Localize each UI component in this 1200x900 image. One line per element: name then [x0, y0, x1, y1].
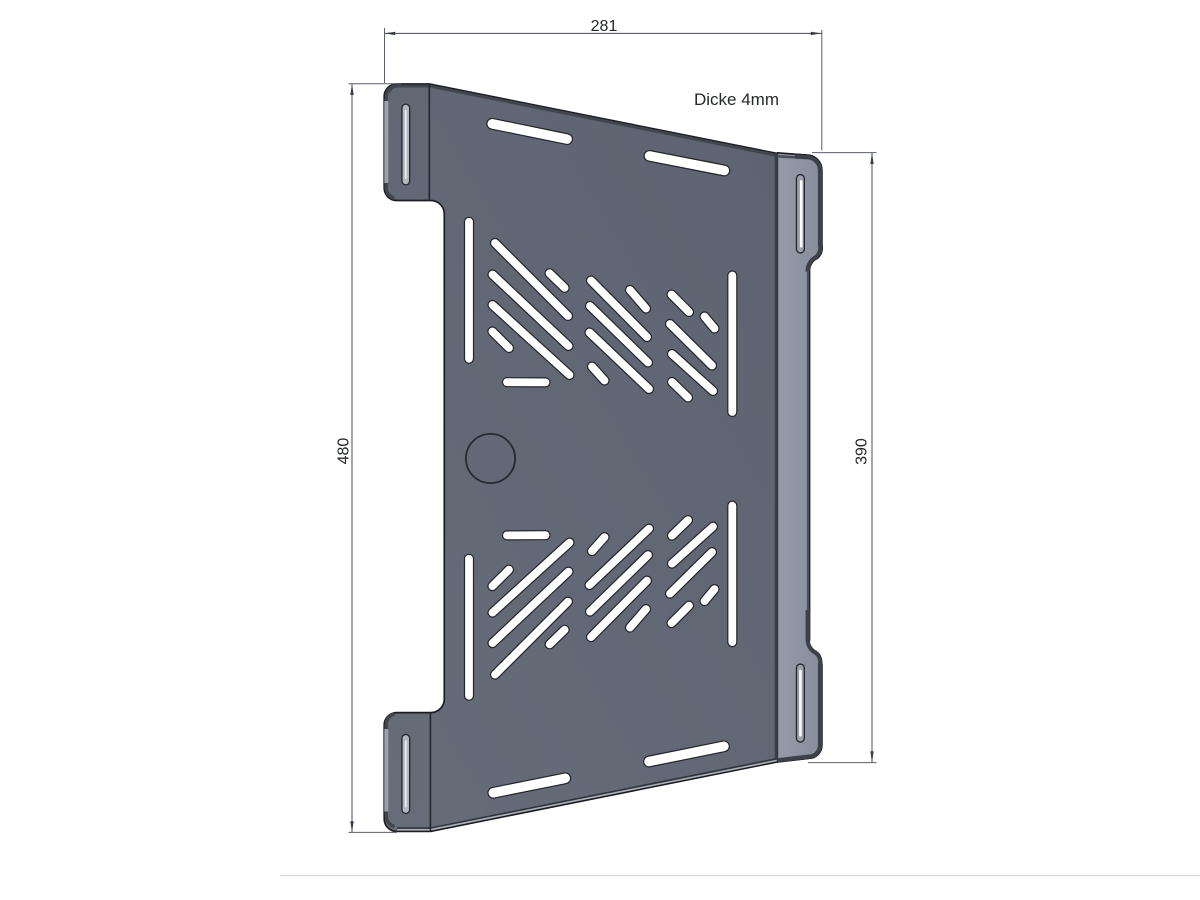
svg-text:281: 281 [591, 18, 618, 35]
svg-text:390: 390 [854, 438, 871, 465]
svg-text:480: 480 [336, 438, 353, 465]
svg-text:Dicke 4mm: Dicke 4mm [694, 90, 779, 109]
